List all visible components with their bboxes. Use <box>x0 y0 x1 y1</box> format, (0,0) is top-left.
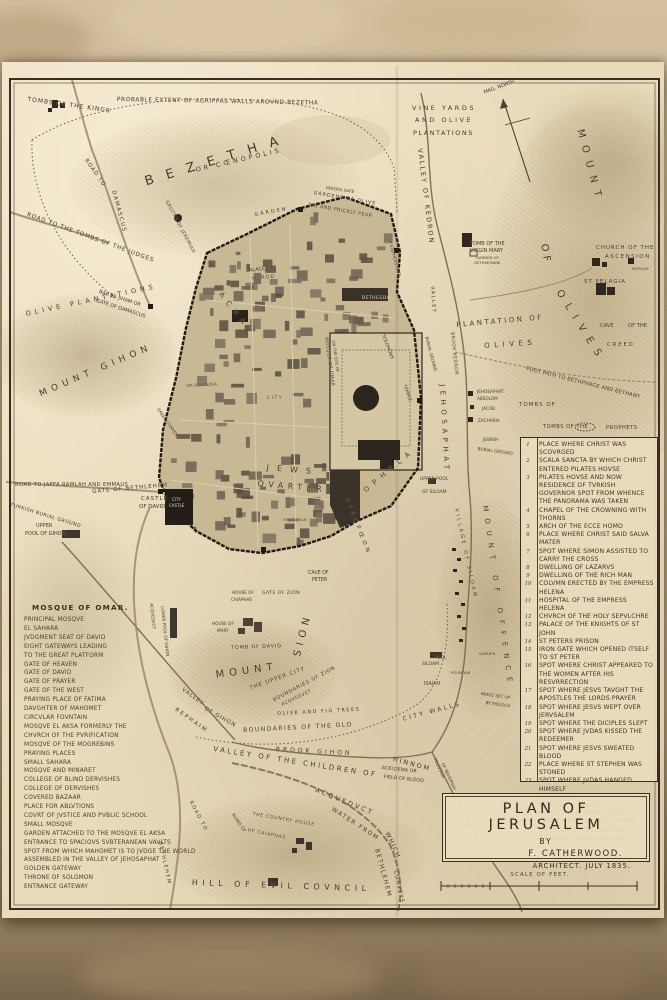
map-label: MOUNT GIHON <box>38 342 154 399</box>
mosque-list-line: CIRCVLAR FOVNTAIN <box>24 714 176 723</box>
reference-item: 15IRON GATE WHICH OPENED ITSELF TO ST PE… <box>521 646 654 662</box>
map-label: BROOK KEDRON <box>449 332 458 375</box>
map-label: BY MOLOCH <box>485 700 510 708</box>
reference-item-text: SPOT WHERE JESVS SWEATED BLOOD <box>535 745 654 761</box>
map-label: ST PELAGIA <box>584 279 626 285</box>
map-label: HEROD <box>252 274 276 282</box>
reference-item: 2SCALA SANCTA BY WHICH CHRIST ENTERED PI… <box>521 457 654 473</box>
map-label: BROOK GIHON <box>276 746 353 757</box>
reference-item: 1PLACE WHERE CHRIST WAS SCOVRGED <box>521 441 654 457</box>
map-label: QVARTER <box>257 479 326 494</box>
reference-item-number: 5 <box>521 523 535 531</box>
reference-item-text: CHAPEL OF THE CROWNING WITH THORNS <box>535 507 654 523</box>
mosque-list-line: THRONE OF SOLOMON <box>24 874 176 883</box>
reference-list-divider <box>537 438 538 781</box>
map-label: ROAD TO THE TOMBS OF THE JUDGES <box>26 212 155 264</box>
map-label: POOL OF GIHON <box>25 531 65 537</box>
map-label: MOSQUE <box>632 266 649 271</box>
map-label: OPHELA <box>362 447 416 494</box>
map-label: CASTLE <box>169 503 184 508</box>
map-label: BURIAL GROUND <box>477 446 513 456</box>
map-label: TOMBS OF <box>519 402 556 408</box>
reference-item: 6PLACE WHERE CHRIST SAID SALVA MATER <box>521 531 654 547</box>
reference-item-text: SPOT WHERE THE DICIPLES SLEPT <box>535 720 654 728</box>
reference-item: 23SPOT WHERE JVDAS HANGED HIMSELF <box>521 777 654 793</box>
map-label: UPPER POOL <box>420 477 448 482</box>
map-label: SILOAM <box>422 662 439 667</box>
mosque-list-line: EIGHT GATEWAYS LEADING <box>24 643 176 652</box>
reference-list: 1PLACE WHERE CHRIST WAS SCOVRGED2SCALA S… <box>520 437 658 782</box>
mosque-list-line: GATE OF DAVID <box>24 669 176 678</box>
mosque-list-line: GATE OF HEAVEN <box>24 661 176 670</box>
map-label: PLANTATIONS <box>413 129 474 137</box>
reference-item-number: 12 <box>521 613 535 621</box>
reference-item-text: PLACE WHERE CHRIST WAS SCOVRGED <box>535 441 654 457</box>
map-label: SION <box>292 612 314 658</box>
reference-item: 17SPOT WHERE JESVS TAVGHT THE APOSTLES T… <box>521 687 654 703</box>
map-label: CAVE <box>600 323 614 329</box>
map-label: VALLEY <box>429 286 437 314</box>
reference-item-text: SPOT WHERE JESVS WEPT OVER JERVSALEM <box>535 704 654 720</box>
mosque-list-line: SPOT FROM WHICH MAHOMET IS TO JVDGE THE … <box>24 848 176 857</box>
map-label: DAMASCUS <box>110 190 127 233</box>
map-label: TOMB OF THE <box>470 241 505 247</box>
reference-item-number: 14 <box>521 638 535 646</box>
mosque-list-line: PLACE FOR ABLVTIONS <box>24 803 176 812</box>
reference-item-number: 19 <box>521 720 535 728</box>
reference-item: 21SPOT WHERE JESVS SWEATED BLOOD <box>521 745 654 761</box>
reference-items: 1PLACE WHERE CHRIST WAS SCOVRGED2SCALA S… <box>521 441 654 843</box>
mosque-list-line: ENTRANCE GATEWAY <box>24 883 176 892</box>
reference-item-text: CHVRCH OF THE HOLY SEPVLCHRE <box>535 613 654 621</box>
reference-item-number: 13 <box>521 621 535 629</box>
title-cartouche-inner-border <box>445 796 647 859</box>
reference-item: 7SPOT WHERE SIMON ASSISTED TO CARRY THE … <box>521 548 654 564</box>
title-cartouche: PLAN OF JERUSALEM BY F. CATHERWOOD. ARCH… <box>442 793 650 862</box>
map-label: BETHESDA <box>362 296 390 301</box>
map-label: OF GIHON <box>203 706 237 729</box>
map-label: VALLEY <box>180 687 205 707</box>
mosque-list-line: GATE OF PRAYER <box>24 678 176 687</box>
map-label: BURIAL GROUND <box>424 336 438 372</box>
mosque-list-line: ASSEMBLED IN THE VALLEY OF JEHOSAPHAT <box>24 856 176 865</box>
map-label: HERODS GATE <box>325 185 354 194</box>
map-label: VIA DOLOROSA <box>186 381 217 388</box>
map-label: FOOT PATH TO BETHPHAGE AND BETHANY <box>526 366 641 400</box>
map-label: VALLEY OF KEDRON <box>416 148 436 245</box>
reference-item-text: IRON GATE WHICH OPENED ITSELF TO ST PETE… <box>535 646 654 662</box>
mosque-list-line: GATE OF THE WEST <box>24 687 176 696</box>
mosque-list-line: GOLDEN GATEWAY <box>24 865 176 874</box>
mosque-list-lines: PRINCIPAL MOSQVEEL SAHARAJVDGMENT SEAT O… <box>24 616 176 892</box>
map-author-role-date: ARCHITECT. JULY 1835. <box>443 862 649 870</box>
mosque-list-line: MOSQVE OF THE MOGREBINS <box>24 741 176 750</box>
mosque-list-line: SMALL MOSQVE <box>24 821 176 830</box>
reference-item: 20SPOT WHERE JVDAS KISSED THE REDEEMER <box>521 728 654 744</box>
map-label: OLIVE AND FIG TREES <box>277 707 361 717</box>
map-label: FOUNTAIN <box>451 670 470 675</box>
mosque-list-line: JVDGMENT SEAT OF DAVID <box>24 634 176 643</box>
map-label: OF <box>538 243 553 266</box>
map-label: GETHSEMANE <box>474 260 500 265</box>
map-label: SYNAGOGUE <box>283 517 307 522</box>
reference-item-number: 6 <box>521 531 535 539</box>
map-label: TYROPŒON <box>343 498 371 556</box>
mosque-list-line: PRAYING PLACE OF FATIMA <box>24 696 176 705</box>
map-label: PROPHETS <box>606 425 638 431</box>
mosque-list-line: COLLEGE OF BLIND DERVISHES <box>24 776 176 785</box>
map-label: CONVEYS <box>392 870 405 904</box>
reference-item: 19SPOT WHERE THE DICIPLES SLEPT <box>521 720 654 728</box>
map-label: FIG AND PRICKLY PEAR <box>308 203 373 219</box>
map-label: MOUNT <box>574 128 605 206</box>
reference-item-text: PALACE OF THE KNIGHTS OF ST JOHN <box>535 621 654 637</box>
reference-item: 14ST PETERS PRISON <box>521 638 654 646</box>
map-label: VILLAGE OF SILOAM <box>453 508 478 600</box>
mosque-list-line: GARDEN ATTACHED TO THE MOSQVE EL AKSA <box>24 830 176 839</box>
reference-item: 11HOSPITAL OF THE EMPRESS HELENA <box>521 597 654 613</box>
scale-label: SCALE OF FEET. <box>500 872 580 878</box>
map-label: UPPER <box>36 523 52 529</box>
map-label: GATE OF ZION <box>262 591 300 596</box>
reference-item: 3PILATES HOVSE AND NOW RESIDENCE OF TVRK… <box>521 474 654 507</box>
reference-item: 13PALACE OF THE KNIGHTS OF ST JOHN <box>521 621 654 637</box>
reference-item-number: 8 <box>521 564 535 572</box>
map-label: OF SILOAM <box>422 490 447 495</box>
map-label: ON THE SITE OF <box>331 340 340 372</box>
reference-item-number: 4 <box>521 507 535 515</box>
reference-item-text: PLACE WHERE ST STEPHEN WAS STONED <box>535 761 654 777</box>
map-label: RUINS OF <box>230 813 246 834</box>
map-label: POOL <box>435 655 446 660</box>
map-label: TOMBS OF THE <box>543 424 588 430</box>
mosque-list-line: PRAYING PLACES <box>24 750 176 759</box>
mosque-list-line: COVRT OF JVSTICE AND PVBLIC SCHOOL <box>24 812 176 821</box>
map-label: OF DAVID <box>139 504 165 510</box>
map-label: JACOB <box>482 406 495 411</box>
map-label: JEHOSAPHAT <box>477 389 504 394</box>
map-label: THE COUNTRY HOUSE <box>252 812 315 828</box>
reference-item-number: 17 <box>521 687 535 695</box>
mosque-list-line: MOSQVE EL AKSA FORMERLY THE <box>24 723 176 732</box>
reference-item: 9DWELLING OF THE RICH MAN <box>521 572 654 580</box>
reference-item: 4CHAPEL OF THE CROWNING WITH THORNS <box>521 507 654 523</box>
reference-item-text: ST PETERS PRISON <box>535 638 654 646</box>
map-label: GROTTO OF JEREMIAH <box>164 200 196 254</box>
reference-item-text: PILATES HOVSE AND NOW RESIDENCE OF TVRKI… <box>535 474 654 507</box>
reference-item: 5ARCH OF THE ECCE HOMO <box>521 523 654 531</box>
map-label: MAG. NORTH <box>483 79 515 96</box>
reference-item-number: 15 <box>521 646 535 654</box>
map-label: CHURCH OF THE <box>596 245 655 251</box>
map-label: PETER <box>312 578 327 583</box>
map-label: VINE YARDS <box>412 104 476 112</box>
map-label: GREEK CONVENT <box>156 407 181 439</box>
reference-item-text: SPOT WHERE JVDAS HANGED HIMSELF <box>535 777 654 793</box>
map-label: OF THE <box>628 323 647 329</box>
map-label: HOUSE OF <box>212 621 234 626</box>
reference-item-number: 9 <box>521 572 535 580</box>
map-label: IMAGE SET UP <box>480 691 510 700</box>
map-label: VIRGIN MARY <box>470 248 503 254</box>
reference-item-number: 22 <box>521 761 535 769</box>
mosque-list-line: TO THE GREAT PLATFORM <box>24 652 176 661</box>
reference-item-number: 2 <box>521 457 535 465</box>
screenshot: TOMBS OF THE KINGSPROBABLE EXTENT OF AGR… <box>0 0 667 1000</box>
mosque-list-line: COVERED BAZAAR <box>24 794 176 803</box>
map-label: BETHLEHEM <box>373 848 393 898</box>
reference-item: 12CHVRCH OF THE HOLY SEPVLCHRE <box>521 613 654 621</box>
reference-item-text: SPOT WHERE CHRIST APPEARED TO THE WOMEN … <box>535 662 654 687</box>
reference-item-text: SPOT WHERE JESVS TAVGHT THE APOSTLES THE… <box>535 687 654 703</box>
map-label: ISAIAH <box>424 682 440 687</box>
mosque-list-line: EL SAHARA <box>24 625 176 634</box>
reference-item-text: HOSPITAL OF THE EMPRESS HELENA <box>535 597 654 613</box>
mosque-of-omar-list: MOSQUE OF OMAR. PRINCIPAL MOSQVEEL SAHAR… <box>24 603 176 892</box>
map-label: HOUSE OF <box>232 590 254 595</box>
reference-item-number: 21 <box>521 745 535 753</box>
map-label: OLIVES <box>484 338 537 350</box>
reference-item-number: 3 <box>521 474 535 482</box>
reference-item-number: 7 <box>521 548 535 556</box>
reference-item-text: SPOT WHERE SIMON ASSISTED TO CARRY THE C… <box>535 548 654 564</box>
map-label: ABSOLOM <box>477 396 498 401</box>
map-label: CASTLE <box>141 496 168 502</box>
reference-item: 18SPOT WHERE JESVS WEPT OVER JERVSALEM <box>521 704 654 720</box>
reference-item-text: ARCH OF THE ECCE HOMO <box>535 523 654 531</box>
map-label: FIELD OF BLOOD <box>383 775 424 784</box>
reference-item-text: SPOT WHERE JVDAS KISSED THE REDEEMER <box>535 728 654 744</box>
map-label: JEWISH <box>483 437 498 442</box>
map-label: SOLOMONS <box>380 334 394 360</box>
reference-item-number: 23 <box>521 777 535 785</box>
map-label: MOUNT OF OFFENCE <box>481 505 515 689</box>
reference-item-number: 16 <box>521 662 535 670</box>
reference-item-number: 18 <box>521 704 535 712</box>
mosque-list-line: MOSQVE AND MINARET <box>24 767 176 776</box>
map-label: ROAD TO <box>188 800 209 833</box>
map-label: CITY WALLS <box>402 700 462 722</box>
map-label: JEWS <box>266 463 319 477</box>
map-label: ROAD TO <box>83 158 107 188</box>
map-label: ACRA <box>217 290 251 330</box>
mosque-list-line: COLLEGE OF DERVISHES <box>24 785 176 794</box>
reference-item-text: DWELLING OF THE RICH MAN <box>535 572 654 580</box>
map-label: CREED <box>607 342 635 348</box>
map-label: PALACE OF <box>246 265 274 274</box>
map-label: AND OLIVE <box>415 116 473 124</box>
reference-item: 8DWELLING OF LAZARVS <box>521 564 654 572</box>
reference-item-text: DWELLING OF LAZARVS <box>535 564 654 572</box>
map-label: JEHOSAPHAT <box>438 384 451 474</box>
reference-item-number: 20 <box>521 728 535 736</box>
map-label: PLANTATION OF <box>456 313 544 329</box>
map-label: PROBABLE EXTENT OF AGRIPPAS WALLS AROVND… <box>117 97 319 107</box>
mosque-list-line: ENTRANCE TO SPACIOVS SVBTERANEAN VAVLTS <box>24 839 176 848</box>
map-label: ASCENSION <box>605 254 651 260</box>
mosque-list-line: SMALL SAHARA <box>24 759 176 768</box>
map-label: CITY <box>267 396 283 401</box>
reference-item-number: 11 <box>521 597 535 605</box>
map-label: TOMBS OF THE KINGS <box>27 96 111 115</box>
mosque-list-title: MOSQUE OF OMAR. <box>32 603 176 612</box>
map-label: MARY <box>217 628 229 633</box>
map-label: CAVE OF <box>308 571 329 576</box>
mosque-list-line: DAVGHTER OF MAHOMET <box>24 705 176 714</box>
reference-item-number: 10 <box>521 580 535 588</box>
reference-item: 16SPOT WHERE CHRIST APPEARED TO THE WOME… <box>521 662 654 687</box>
mosque-list-line: PRINCIPAL MOSQVE <box>24 616 176 625</box>
map-label: GARDEN <box>254 206 288 218</box>
reference-item-text: PLACE WHERE CHRIST SAID SALVA MATER <box>535 531 654 547</box>
map-label: GARDEN <box>479 651 495 656</box>
map-label: OF CAIAPHAS <box>247 828 286 841</box>
reference-item: 10COLVMN ERECTED BY THE EMPRESS HELENA <box>521 580 654 596</box>
map-label: ZACHARIA <box>478 418 500 423</box>
mosque-list-line: CHVRCH OF THE PVRIFICATION <box>24 732 176 741</box>
reference-item-text: SCALA SANCTA BY WHICH CHRIST ENTERED PIL… <box>535 457 654 473</box>
map-label: WHICH <box>384 831 402 860</box>
reference-item: 22PLACE WHERE ST STEPHEN WAS STONED <box>521 761 654 777</box>
map-label: TOMB OF DAVID <box>231 643 282 651</box>
map-label: CITY <box>172 497 181 502</box>
map-label: CAIAPHAS <box>231 597 252 602</box>
map-label: TEMPLE <box>401 384 412 402</box>
reference-item-number: 1 <box>521 441 535 449</box>
map-label: ST STEPHENS GATE <box>387 238 402 277</box>
map-label: HILL OF EVIL COVNCIL <box>192 878 371 893</box>
map-label: BOUNDARIES OF THE OLD <box>243 721 353 734</box>
reference-item-text: COLVMN ERECTED BY THE EMPRESS HELENA <box>535 580 654 596</box>
